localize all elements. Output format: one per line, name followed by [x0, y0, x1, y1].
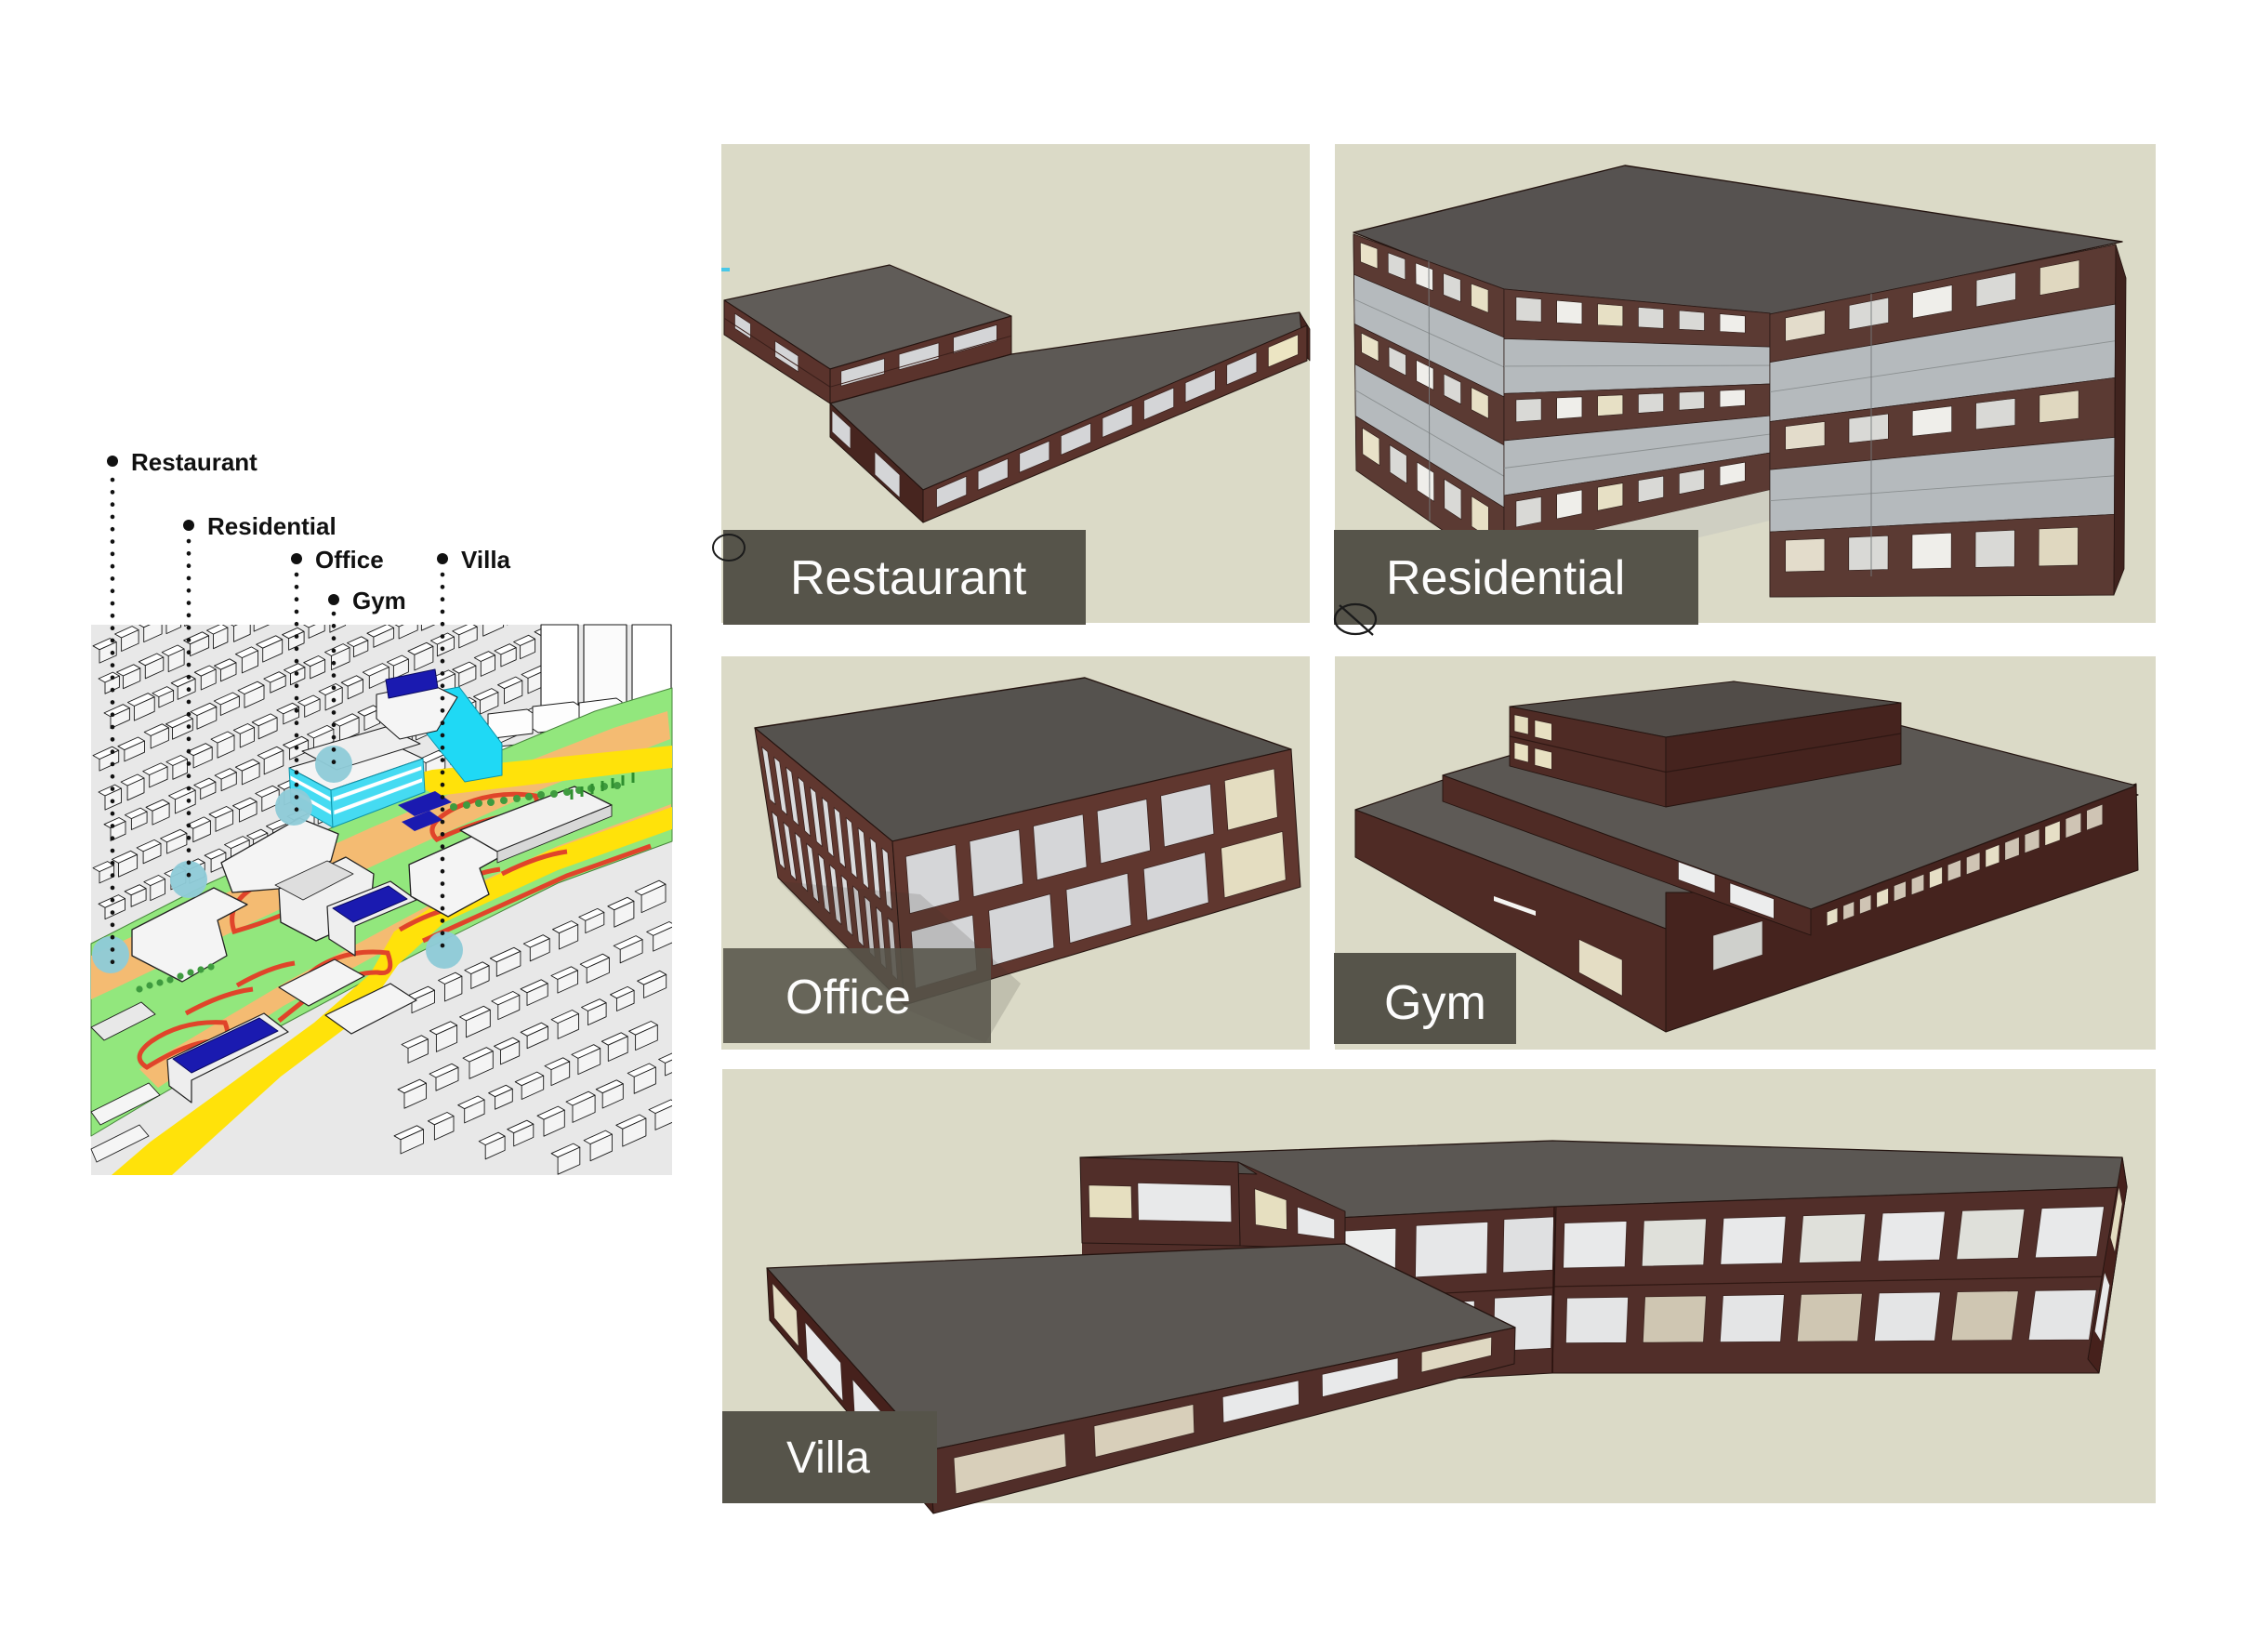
- svg-text:Restaurant: Restaurant: [131, 448, 257, 476]
- svg-text:Villa: Villa: [461, 546, 511, 574]
- svg-text:Residential: Residential: [207, 512, 337, 540]
- svg-text:Office: Office: [315, 546, 384, 574]
- svg-text:Gym: Gym: [1384, 976, 1486, 1030]
- svg-text:Restaurant: Restaurant: [790, 551, 1027, 605]
- svg-text:Gym: Gym: [352, 587, 406, 615]
- svg-text:Villa: Villa: [786, 1434, 870, 1483]
- svg-text:Office: Office: [785, 971, 911, 1024]
- svg-text:Residential: Residential: [1386, 551, 1625, 605]
